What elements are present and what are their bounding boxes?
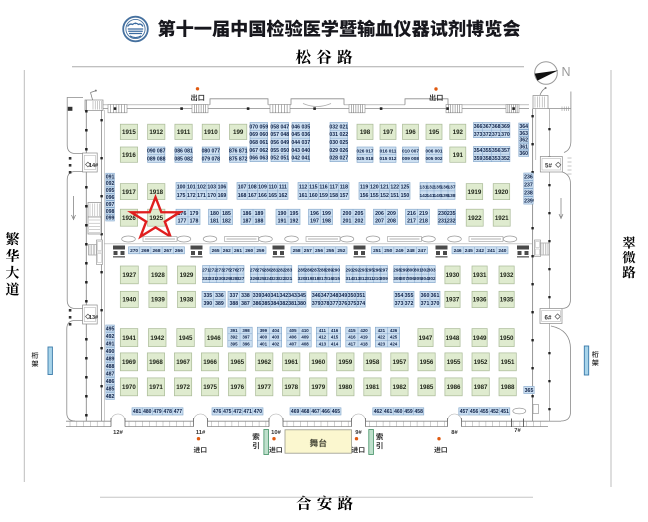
svg-text:414: 414 bbox=[331, 341, 339, 346]
svg-text:158: 158 bbox=[329, 193, 338, 199]
svg-text:482: 482 bbox=[106, 394, 115, 400]
svg-text:079 078: 079 078 bbox=[202, 156, 221, 162]
svg-text:277: 277 bbox=[237, 268, 245, 273]
svg-text:057 048: 057 048 bbox=[270, 132, 289, 138]
svg-text:195: 195 bbox=[429, 129, 440, 136]
svg-text:465: 465 bbox=[332, 409, 341, 415]
svg-text:198: 198 bbox=[322, 219, 331, 225]
svg-text:116: 116 bbox=[319, 185, 327, 191]
svg-text:090 087: 090 087 bbox=[147, 149, 166, 155]
svg-text:199: 199 bbox=[233, 129, 244, 136]
svg-text:192: 192 bbox=[290, 219, 299, 225]
svg-text:206: 206 bbox=[375, 211, 384, 217]
svg-text:1970: 1970 bbox=[122, 384, 136, 391]
svg-text:335: 335 bbox=[203, 293, 212, 299]
svg-text:419: 419 bbox=[360, 335, 368, 340]
svg-text:058 047: 058 047 bbox=[270, 124, 289, 130]
svg-text:1931: 1931 bbox=[473, 272, 487, 279]
svg-text:425: 425 bbox=[390, 335, 398, 340]
svg-text:420: 420 bbox=[360, 328, 368, 333]
svg-text:196: 196 bbox=[310, 211, 319, 217]
svg-text:1955: 1955 bbox=[447, 359, 461, 366]
svg-text:186: 186 bbox=[243, 211, 252, 217]
svg-text:181: 181 bbox=[210, 219, 219, 225]
svg-text:172: 172 bbox=[187, 193, 196, 199]
svg-text:11#: 11# bbox=[196, 430, 206, 436]
svg-text:1945: 1945 bbox=[179, 335, 193, 342]
svg-text:283: 283 bbox=[284, 268, 292, 273]
svg-text:030 025: 030 025 bbox=[329, 140, 348, 146]
svg-text:238: 238 bbox=[524, 190, 533, 196]
svg-text:1940: 1940 bbox=[122, 297, 136, 304]
svg-text:069 060: 069 060 bbox=[249, 132, 268, 138]
svg-text:372: 372 bbox=[483, 132, 492, 138]
svg-text:258: 258 bbox=[293, 248, 301, 254]
svg-text:385: 385 bbox=[262, 301, 271, 307]
svg-text:178: 178 bbox=[190, 219, 199, 225]
svg-text:327: 327 bbox=[237, 276, 245, 281]
svg-text:355: 355 bbox=[405, 293, 414, 299]
svg-text:489: 489 bbox=[106, 356, 115, 362]
svg-text:396: 396 bbox=[242, 341, 250, 346]
svg-text:109: 109 bbox=[258, 185, 267, 191]
svg-text:1958: 1958 bbox=[366, 359, 380, 366]
svg-text:5#: 5# bbox=[545, 162, 552, 169]
svg-text:1966: 1966 bbox=[203, 359, 217, 366]
svg-text:044 037: 044 037 bbox=[291, 140, 310, 146]
svg-text:252: 252 bbox=[337, 248, 345, 254]
svg-text:417: 417 bbox=[348, 341, 356, 346]
svg-text:480: 480 bbox=[143, 409, 152, 415]
svg-text:348: 348 bbox=[330, 293, 339, 299]
svg-text:460: 460 bbox=[394, 409, 403, 415]
svg-text:268: 268 bbox=[152, 248, 160, 254]
svg-text:389: 389 bbox=[215, 301, 224, 307]
svg-text:198: 198 bbox=[360, 129, 371, 136]
svg-text:157: 157 bbox=[340, 193, 349, 199]
svg-text:1950: 1950 bbox=[500, 335, 514, 342]
svg-text:477: 477 bbox=[174, 409, 183, 415]
svg-text:397: 397 bbox=[242, 335, 250, 340]
svg-text:242: 242 bbox=[476, 248, 484, 254]
svg-text:355: 355 bbox=[483, 148, 492, 154]
svg-text:462: 462 bbox=[374, 409, 383, 415]
svg-text:1942: 1942 bbox=[150, 335, 164, 342]
svg-text:270: 270 bbox=[130, 248, 138, 254]
svg-text:099: 099 bbox=[106, 216, 115, 222]
svg-text:1981: 1981 bbox=[366, 384, 380, 391]
svg-text:026 017: 026 017 bbox=[357, 149, 374, 154]
svg-text:362: 362 bbox=[519, 138, 528, 144]
svg-text:025 018: 025 018 bbox=[357, 156, 374, 161]
svg-text:046 035: 046 035 bbox=[291, 124, 310, 130]
svg-text:1941: 1941 bbox=[122, 335, 136, 342]
svg-text:177: 177 bbox=[178, 219, 187, 225]
svg-text:297: 297 bbox=[380, 268, 388, 273]
svg-text:031 022: 031 022 bbox=[329, 132, 348, 138]
svg-text:386: 386 bbox=[253, 301, 262, 307]
svg-text:365: 365 bbox=[525, 388, 534, 394]
svg-text:015 012: 015 012 bbox=[380, 156, 397, 161]
svg-text:096: 096 bbox=[106, 195, 115, 201]
svg-text:1956: 1956 bbox=[420, 359, 434, 366]
svg-text:100: 100 bbox=[177, 185, 186, 191]
svg-text:876 871: 876 871 bbox=[229, 149, 248, 155]
svg-text:1976: 1976 bbox=[230, 384, 244, 391]
svg-text:492: 492 bbox=[106, 334, 115, 340]
svg-text:232: 232 bbox=[447, 219, 456, 225]
svg-text:402: 402 bbox=[272, 341, 280, 346]
svg-text:192: 192 bbox=[453, 129, 464, 136]
svg-text:202: 202 bbox=[355, 219, 364, 225]
svg-text:337: 337 bbox=[229, 293, 238, 299]
svg-text:205: 205 bbox=[355, 211, 364, 217]
svg-text:219: 219 bbox=[419, 211, 428, 217]
svg-text:495: 495 bbox=[106, 326, 115, 332]
svg-text:359: 359 bbox=[474, 156, 483, 162]
svg-text:119: 119 bbox=[360, 185, 368, 191]
svg-text:1912: 1912 bbox=[149, 129, 163, 136]
svg-text:016 011: 016 011 bbox=[380, 149, 397, 154]
svg-text:091: 091 bbox=[106, 174, 115, 180]
svg-text:375: 375 bbox=[348, 301, 357, 307]
svg-text:1917: 1917 bbox=[122, 189, 136, 196]
svg-text:321: 321 bbox=[284, 276, 292, 281]
svg-text:241: 241 bbox=[487, 248, 495, 254]
svg-text:336: 336 bbox=[215, 293, 224, 299]
svg-text:456: 456 bbox=[470, 409, 479, 415]
svg-text:475: 475 bbox=[223, 409, 232, 415]
svg-text:160: 160 bbox=[309, 193, 318, 199]
svg-text:346: 346 bbox=[312, 293, 321, 299]
svg-text:1965: 1965 bbox=[230, 359, 244, 366]
svg-text:424: 424 bbox=[390, 341, 398, 346]
svg-text:371: 371 bbox=[421, 301, 430, 307]
svg-text:485: 485 bbox=[106, 386, 115, 392]
svg-text:1929: 1929 bbox=[180, 272, 194, 279]
svg-text:398: 398 bbox=[242, 328, 250, 333]
svg-text:373: 373 bbox=[395, 301, 404, 307]
svg-text:1967: 1967 bbox=[176, 359, 190, 366]
svg-text:1916: 1916 bbox=[122, 152, 136, 159]
svg-text:085 082: 085 082 bbox=[174, 156, 193, 162]
svg-text:347: 347 bbox=[321, 293, 330, 299]
svg-text:137: 137 bbox=[447, 184, 455, 190]
svg-text:403: 403 bbox=[272, 335, 280, 340]
svg-text:102: 102 bbox=[197, 185, 206, 191]
svg-text:350: 350 bbox=[348, 293, 357, 299]
svg-text:169: 169 bbox=[218, 193, 227, 199]
svg-text:067 062: 067 062 bbox=[249, 148, 268, 154]
svg-text:1988: 1988 bbox=[501, 384, 515, 391]
svg-text:478: 478 bbox=[164, 409, 173, 415]
svg-text:370: 370 bbox=[501, 132, 510, 138]
svg-text:196: 196 bbox=[405, 129, 416, 136]
svg-text:368: 368 bbox=[492, 124, 501, 130]
svg-text:1960: 1960 bbox=[311, 359, 325, 366]
svg-text:340: 340 bbox=[262, 293, 271, 299]
svg-text:491: 491 bbox=[106, 341, 115, 347]
svg-text:112: 112 bbox=[299, 185, 307, 191]
svg-text:266: 266 bbox=[175, 248, 183, 254]
svg-text:400: 400 bbox=[260, 335, 268, 340]
svg-text:384: 384 bbox=[270, 301, 279, 307]
svg-text:1911: 1911 bbox=[177, 129, 191, 136]
svg-text:168: 168 bbox=[238, 193, 247, 199]
svg-text:387: 387 bbox=[241, 301, 250, 307]
svg-text:487: 487 bbox=[106, 371, 115, 377]
svg-text:415: 415 bbox=[348, 328, 356, 333]
svg-text:472: 472 bbox=[233, 409, 242, 415]
svg-text:401: 401 bbox=[260, 341, 268, 346]
svg-text:1962: 1962 bbox=[257, 359, 271, 366]
svg-text:875 872: 875 872 bbox=[229, 156, 248, 162]
svg-text:201: 201 bbox=[343, 219, 352, 225]
svg-text:1947: 1947 bbox=[419, 335, 433, 342]
svg-text:1968: 1968 bbox=[149, 359, 163, 366]
svg-text:195: 195 bbox=[290, 211, 299, 217]
svg-text:367: 367 bbox=[483, 124, 492, 130]
svg-text:1957: 1957 bbox=[393, 359, 407, 366]
svg-text:182: 182 bbox=[222, 219, 231, 225]
svg-text:166: 166 bbox=[258, 193, 267, 199]
svg-text:138: 138 bbox=[447, 193, 455, 199]
svg-text:457: 457 bbox=[460, 409, 469, 415]
svg-text:391: 391 bbox=[230, 328, 238, 333]
svg-text:290: 290 bbox=[332, 268, 340, 273]
svg-text:413: 413 bbox=[319, 341, 327, 346]
svg-text:411: 411 bbox=[319, 328, 327, 333]
svg-text:399: 399 bbox=[260, 328, 268, 333]
svg-text:412: 412 bbox=[319, 335, 327, 340]
svg-text:1920: 1920 bbox=[495, 189, 509, 196]
svg-text:1922: 1922 bbox=[468, 215, 482, 222]
svg-text:363: 363 bbox=[519, 131, 528, 137]
svg-text:188: 188 bbox=[255, 219, 264, 225]
svg-text:052 051: 052 051 bbox=[270, 156, 289, 162]
svg-text:165: 165 bbox=[268, 193, 277, 199]
svg-text:466: 466 bbox=[322, 409, 331, 415]
svg-text:458: 458 bbox=[415, 409, 424, 415]
svg-text:1975: 1975 bbox=[203, 384, 217, 391]
svg-text:261: 261 bbox=[234, 248, 242, 254]
svg-text:1980: 1980 bbox=[338, 384, 352, 391]
svg-text:488: 488 bbox=[106, 364, 115, 370]
svg-text:1979: 1979 bbox=[311, 384, 325, 391]
svg-text:028 027: 028 027 bbox=[329, 156, 348, 162]
svg-text:361: 361 bbox=[431, 293, 440, 299]
svg-text:343: 343 bbox=[288, 293, 297, 299]
svg-text:029 026: 029 026 bbox=[329, 148, 348, 154]
svg-text:459: 459 bbox=[404, 409, 413, 415]
svg-text:426: 426 bbox=[390, 328, 398, 333]
svg-text:106: 106 bbox=[218, 185, 227, 191]
svg-text:1978: 1978 bbox=[284, 384, 298, 391]
svg-text:235: 235 bbox=[447, 211, 456, 217]
svg-text:152: 152 bbox=[380, 193, 389, 199]
svg-text:150: 150 bbox=[401, 193, 410, 199]
svg-text:010 007: 010 007 bbox=[402, 149, 419, 154]
svg-text:191: 191 bbox=[453, 152, 464, 159]
svg-text:260: 260 bbox=[245, 248, 253, 254]
svg-text:404: 404 bbox=[272, 328, 280, 333]
svg-text:187: 187 bbox=[243, 219, 252, 225]
svg-text:395: 395 bbox=[230, 341, 238, 346]
svg-text:451: 451 bbox=[501, 409, 510, 415]
svg-text:361: 361 bbox=[519, 145, 528, 151]
svg-text:10#: 10# bbox=[271, 430, 281, 436]
svg-text:1986: 1986 bbox=[447, 384, 461, 391]
svg-text:107: 107 bbox=[238, 185, 247, 191]
svg-text:452: 452 bbox=[490, 409, 499, 415]
svg-text:1925: 1925 bbox=[149, 215, 163, 222]
svg-text:N: N bbox=[561, 65, 570, 79]
svg-text:379: 379 bbox=[312, 301, 321, 307]
svg-text:422: 422 bbox=[378, 335, 386, 340]
svg-text:190: 190 bbox=[278, 211, 287, 217]
svg-text:358: 358 bbox=[483, 156, 492, 162]
svg-text:208: 208 bbox=[387, 219, 396, 225]
svg-text:180: 180 bbox=[210, 211, 219, 217]
svg-text:240: 240 bbox=[498, 248, 506, 254]
svg-text:236: 236 bbox=[524, 175, 533, 181]
svg-text:055 050: 055 050 bbox=[270, 148, 289, 154]
svg-text:110: 110 bbox=[269, 185, 277, 191]
svg-text:237: 237 bbox=[524, 183, 533, 189]
svg-text:156: 156 bbox=[360, 193, 369, 199]
svg-text:408: 408 bbox=[301, 341, 309, 346]
svg-text:101: 101 bbox=[187, 185, 196, 191]
svg-text:1930: 1930 bbox=[446, 272, 460, 279]
svg-text:339: 339 bbox=[253, 293, 262, 299]
svg-text:315: 315 bbox=[332, 276, 340, 281]
svg-text:095: 095 bbox=[106, 188, 115, 194]
svg-text:103: 103 bbox=[207, 185, 216, 191]
svg-text:468: 468 bbox=[301, 409, 310, 415]
svg-text:471: 471 bbox=[244, 409, 253, 415]
svg-text:1946: 1946 bbox=[207, 335, 221, 342]
svg-text:122: 122 bbox=[390, 185, 399, 191]
svg-text:259: 259 bbox=[256, 248, 264, 254]
svg-text:247: 247 bbox=[418, 248, 426, 254]
svg-text:056 049: 056 049 bbox=[270, 140, 289, 146]
svg-text:303: 303 bbox=[428, 268, 436, 273]
svg-text:199: 199 bbox=[322, 211, 331, 217]
svg-text:409: 409 bbox=[301, 335, 309, 340]
svg-text:373: 373 bbox=[474, 132, 483, 138]
svg-text:366: 366 bbox=[474, 124, 483, 130]
svg-text:380: 380 bbox=[297, 301, 306, 307]
svg-text:256: 256 bbox=[315, 248, 323, 254]
svg-text:360: 360 bbox=[519, 151, 528, 157]
svg-text:416: 416 bbox=[331, 328, 339, 333]
svg-text:070 059: 070 059 bbox=[249, 124, 268, 130]
svg-text:410: 410 bbox=[301, 328, 309, 333]
svg-text:338: 338 bbox=[241, 293, 250, 299]
svg-text:151: 151 bbox=[390, 193, 399, 199]
svg-text:6#: 6# bbox=[545, 314, 552, 321]
svg-text:490: 490 bbox=[106, 349, 115, 355]
svg-text:108: 108 bbox=[248, 185, 257, 191]
svg-text:1921: 1921 bbox=[495, 215, 509, 222]
svg-text:12#: 12# bbox=[113, 430, 123, 436]
svg-text:345: 345 bbox=[297, 293, 306, 299]
svg-text:1982: 1982 bbox=[393, 384, 407, 391]
svg-text:1932: 1932 bbox=[500, 272, 514, 279]
svg-text:200: 200 bbox=[343, 211, 352, 217]
svg-text:351: 351 bbox=[356, 293, 365, 299]
svg-text:392: 392 bbox=[230, 335, 238, 340]
svg-text:097: 097 bbox=[106, 202, 115, 208]
svg-text:265: 265 bbox=[212, 248, 220, 254]
svg-text:005 002: 005 002 bbox=[426, 156, 443, 161]
svg-text:455: 455 bbox=[480, 409, 489, 415]
svg-text:189: 189 bbox=[255, 211, 264, 217]
svg-text:1928: 1928 bbox=[151, 272, 165, 279]
svg-text:1971: 1971 bbox=[149, 384, 163, 391]
svg-text:246: 246 bbox=[454, 248, 462, 254]
svg-text:377: 377 bbox=[330, 301, 339, 307]
svg-text:162: 162 bbox=[279, 193, 288, 199]
svg-text:353: 353 bbox=[492, 156, 501, 162]
svg-text:197: 197 bbox=[310, 219, 319, 225]
svg-text:155: 155 bbox=[370, 193, 379, 199]
svg-text:1919: 1919 bbox=[468, 189, 482, 196]
svg-text:248: 248 bbox=[407, 248, 415, 254]
svg-text:470: 470 bbox=[254, 409, 263, 415]
svg-text:357: 357 bbox=[501, 148, 510, 154]
svg-text:175: 175 bbox=[177, 193, 186, 199]
svg-text:407: 407 bbox=[289, 341, 297, 346]
svg-text:231: 231 bbox=[438, 219, 447, 225]
svg-text:406: 406 bbox=[289, 335, 297, 340]
svg-text:171: 171 bbox=[197, 193, 206, 199]
svg-text:245: 245 bbox=[465, 248, 473, 254]
svg-text:376: 376 bbox=[339, 301, 348, 307]
svg-text:207: 207 bbox=[375, 219, 384, 225]
svg-text:1910: 1910 bbox=[204, 129, 218, 136]
svg-text:1948: 1948 bbox=[446, 335, 460, 342]
svg-text:230: 230 bbox=[438, 211, 447, 217]
svg-text:352: 352 bbox=[501, 156, 510, 162]
svg-text:1961: 1961 bbox=[284, 359, 298, 366]
svg-text:045 036: 045 036 bbox=[291, 132, 310, 138]
svg-text:185: 185 bbox=[222, 211, 231, 217]
svg-text:1927: 1927 bbox=[122, 272, 136, 279]
svg-text:086 081: 086 081 bbox=[174, 149, 193, 155]
svg-text:418: 418 bbox=[360, 341, 368, 346]
svg-text:092: 092 bbox=[106, 181, 115, 187]
svg-text:469: 469 bbox=[291, 409, 300, 415]
svg-text:354: 354 bbox=[474, 148, 483, 154]
svg-text:381: 381 bbox=[288, 301, 297, 307]
svg-text:374: 374 bbox=[356, 301, 365, 307]
svg-text:390: 390 bbox=[203, 301, 212, 307]
svg-text:388: 388 bbox=[229, 301, 238, 307]
svg-text:120: 120 bbox=[370, 185, 379, 191]
svg-text:360: 360 bbox=[421, 293, 430, 299]
svg-text:066 063: 066 063 bbox=[249, 156, 268, 162]
svg-text:1918: 1918 bbox=[149, 189, 163, 196]
svg-text:098: 098 bbox=[106, 209, 115, 215]
svg-text:121: 121 bbox=[380, 185, 389, 191]
svg-text:486: 486 bbox=[106, 379, 115, 385]
svg-text:416: 416 bbox=[348, 335, 356, 340]
svg-text:257: 257 bbox=[304, 248, 312, 254]
svg-text:209: 209 bbox=[387, 211, 396, 217]
svg-text:356: 356 bbox=[492, 148, 501, 154]
svg-text:421: 421 bbox=[378, 328, 386, 333]
